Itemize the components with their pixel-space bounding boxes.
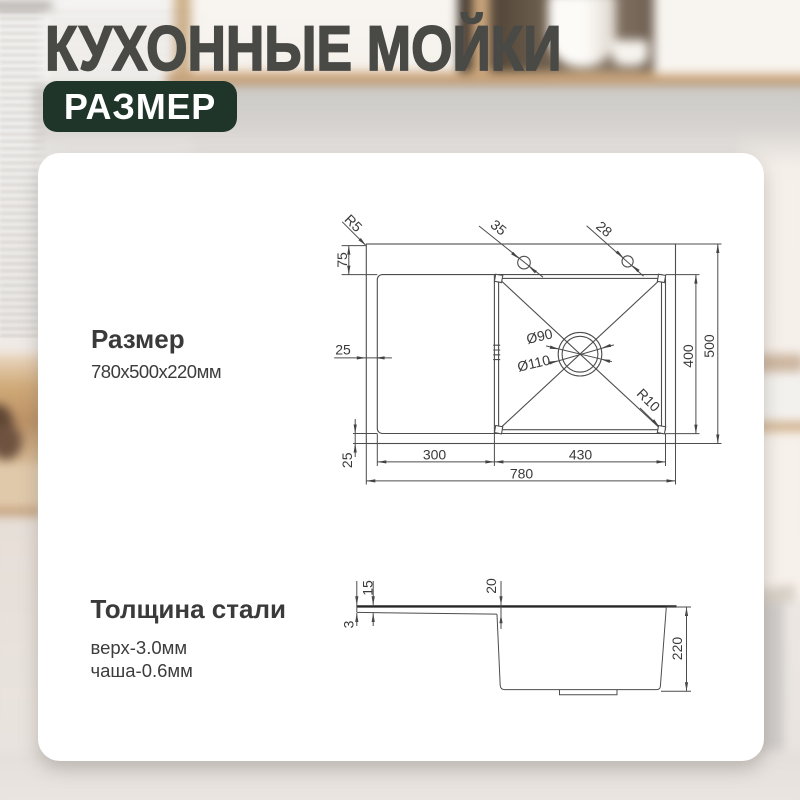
svg-text:500: 500 bbox=[701, 334, 717, 358]
svg-text:300: 300 bbox=[423, 447, 447, 463]
svg-text:R5: R5 bbox=[342, 211, 366, 235]
svg-text:430: 430 bbox=[569, 447, 593, 463]
svg-text:Ø110: Ø110 bbox=[516, 352, 552, 375]
svg-text:15: 15 bbox=[360, 580, 376, 596]
svg-text:25: 25 bbox=[339, 452, 355, 468]
svg-text:3: 3 bbox=[341, 620, 357, 628]
svg-text:220: 220 bbox=[669, 637, 685, 661]
svg-text:R10: R10 bbox=[634, 385, 664, 415]
svg-text:780: 780 bbox=[510, 465, 534, 481]
svg-text:25: 25 bbox=[335, 342, 351, 358]
svg-text:400: 400 bbox=[680, 344, 696, 368]
svg-text:Ø90: Ø90 bbox=[525, 325, 555, 347]
svg-text:75: 75 bbox=[334, 252, 350, 268]
svg-text:28: 28 bbox=[593, 218, 615, 240]
svg-text:20: 20 bbox=[483, 578, 499, 594]
